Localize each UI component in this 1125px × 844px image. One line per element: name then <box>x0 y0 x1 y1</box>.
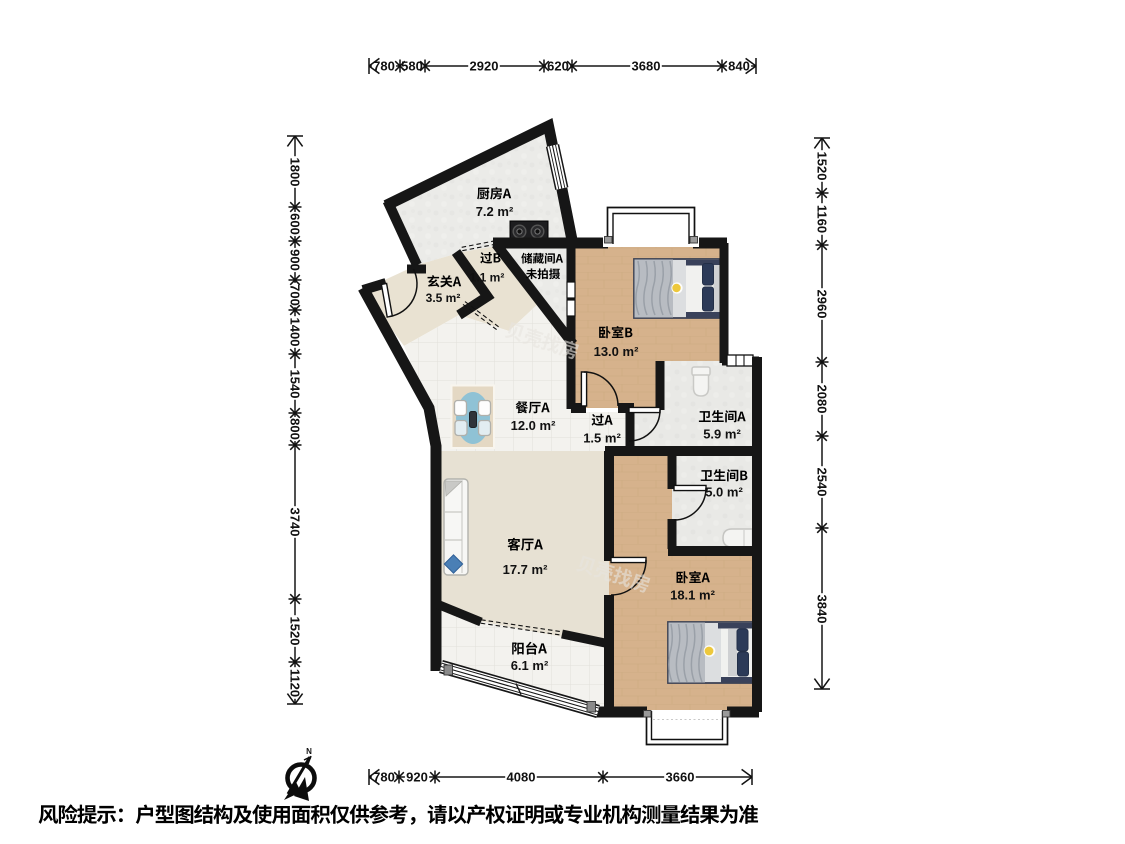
svg-text:900: 900 <box>287 249 302 271</box>
svg-text:3740: 3740 <box>287 508 302 537</box>
svg-text:3660: 3660 <box>666 770 695 785</box>
svg-text:1160: 1160 <box>814 205 829 233</box>
svg-text:620: 620 <box>547 59 569 74</box>
svg-text:920: 920 <box>406 770 428 785</box>
svg-text:800: 800 <box>287 418 302 440</box>
svg-text:1400: 1400 <box>287 318 302 347</box>
svg-text:3840: 3840 <box>814 595 829 624</box>
svg-text:13.0 m²: 13.0 m² <box>594 344 639 359</box>
svg-text:2920: 2920 <box>470 59 499 74</box>
svg-text:840: 840 <box>728 59 750 74</box>
svg-text:700: 700 <box>287 284 302 306</box>
svg-text:2080: 2080 <box>814 385 829 414</box>
svg-text:2540: 2540 <box>814 468 829 497</box>
svg-text:4080: 4080 <box>507 770 536 785</box>
svg-text:12.0 m²: 12.0 m² <box>511 418 556 433</box>
svg-text:5.0 m²: 5.0 m² <box>705 485 743 500</box>
svg-text:1800: 1800 <box>287 158 302 187</box>
svg-text:18.1 m²: 18.1 m² <box>670 588 715 603</box>
svg-text:2960: 2960 <box>814 290 829 319</box>
svg-text:17.7 m²: 17.7 m² <box>503 562 548 577</box>
svg-text:1520: 1520 <box>814 152 829 181</box>
svg-text:3680: 3680 <box>632 59 661 74</box>
svg-text:3.5 m²: 3.5 m² <box>426 291 461 305</box>
svg-text:1540: 1540 <box>287 370 302 399</box>
svg-text:7.2 m²: 7.2 m² <box>476 204 514 219</box>
svg-text:1.1 m²: 1.1 m² <box>470 271 505 285</box>
svg-text:1.5 m²: 1.5 m² <box>583 431 621 446</box>
svg-text:1520: 1520 <box>287 617 302 646</box>
svg-text:5.9 m²: 5.9 m² <box>703 427 741 442</box>
svg-text:N: N <box>306 747 312 756</box>
svg-text:1120: 1120 <box>287 669 302 697</box>
svg-text:600: 600 <box>287 213 302 235</box>
svg-text:6.1 m²: 6.1 m² <box>511 658 549 673</box>
